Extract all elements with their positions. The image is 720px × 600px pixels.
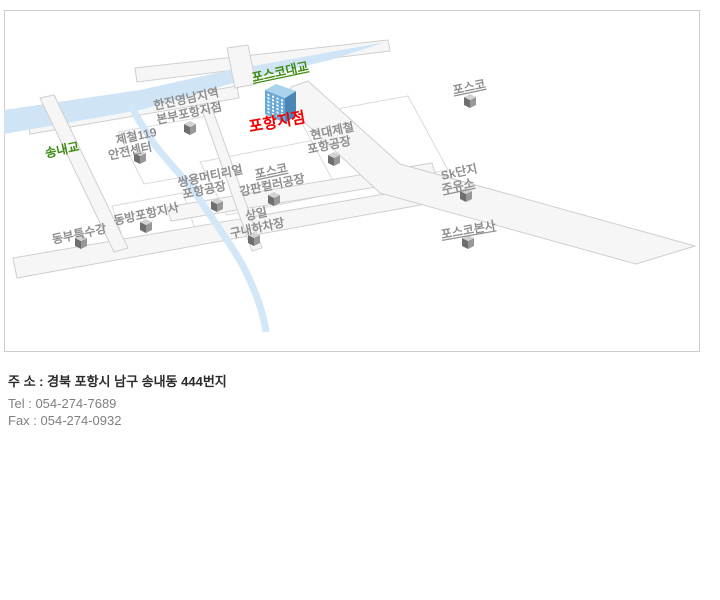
cube-ssangyong [211, 198, 223, 212]
address-text: 주 소 : 경북 포항시 남구 송내동 444번지 [8, 371, 227, 390]
tel-text: Tel : 054-274-7689 [8, 396, 116, 411]
page: 포스코대교 송내교 포항지점 한진영남지역 본부포항지점 제철119 안전센터 … [0, 0, 720, 600]
location-map: 포스코대교 송내교 포항지점 한진영남지역 본부포항지점 제철119 안전센터 … [4, 10, 700, 352]
fax-text: Fax : 054-274-0932 [8, 413, 121, 428]
map-canvas: 포스코대교 송내교 포항지점 한진영남지역 본부포항지점 제철119 안전센터 … [4, 10, 700, 352]
cube-hyundai [328, 152, 340, 166]
cube-hanjin [184, 121, 196, 135]
cube-gangpan [268, 192, 280, 206]
